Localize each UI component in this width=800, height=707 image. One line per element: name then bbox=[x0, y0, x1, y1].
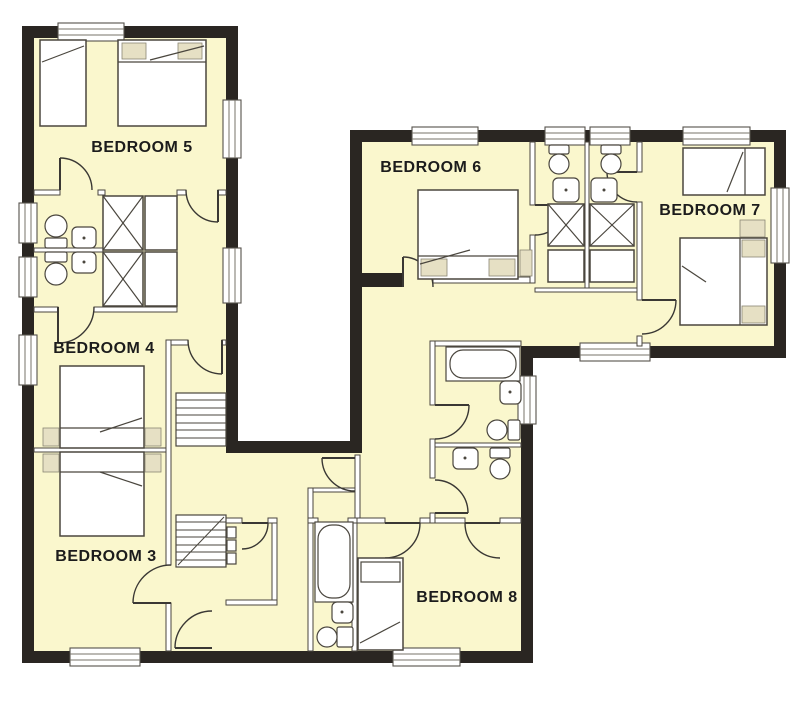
wardrobe-icon bbox=[103, 252, 143, 306]
label-bedroom-5: BEDROOM 5 bbox=[91, 139, 192, 156]
bed-icon bbox=[60, 452, 144, 536]
bed-icon bbox=[680, 238, 767, 325]
toilet-icon bbox=[549, 145, 569, 174]
window-icon bbox=[223, 100, 241, 158]
nightstand-icon bbox=[740, 220, 765, 237]
window-icon bbox=[590, 127, 630, 145]
toilet-icon bbox=[601, 145, 621, 174]
shelf-unit-icon bbox=[590, 250, 634, 282]
bathtub-icon bbox=[446, 347, 520, 381]
nightstand-icon bbox=[145, 428, 161, 446]
toilet-icon bbox=[490, 448, 510, 479]
window-icon bbox=[19, 335, 37, 385]
shelf-unit-icon bbox=[145, 252, 177, 306]
nightstand-icon bbox=[145, 454, 161, 472]
window-icon bbox=[545, 127, 585, 145]
shelf-unit-icon bbox=[145, 196, 177, 250]
shelf-unit-icon bbox=[548, 250, 584, 282]
bed-icon bbox=[60, 366, 144, 448]
toilet-icon bbox=[45, 252, 67, 285]
window-icon bbox=[683, 127, 750, 145]
label-bedroom-4: BEDROOM 4 bbox=[53, 340, 154, 357]
bed-icon bbox=[418, 190, 518, 279]
sink-icon bbox=[72, 252, 96, 273]
nightstand-icon bbox=[520, 250, 532, 276]
shelf-unit-icon bbox=[227, 553, 236, 564]
sink-icon bbox=[332, 602, 353, 623]
window-icon bbox=[412, 127, 478, 145]
nightstand-icon bbox=[43, 454, 59, 472]
staircase-upper-flight bbox=[176, 393, 226, 446]
floor-plan-drawing: BEDROOM 5 BEDROOM 4 BEDROOM 3 BEDROOM 6 … bbox=[0, 0, 800, 707]
bed-icon bbox=[683, 148, 765, 195]
sink-icon bbox=[453, 448, 478, 469]
window-icon bbox=[771, 188, 789, 263]
label-bedroom-8: BEDROOM 8 bbox=[416, 589, 517, 606]
window-icon bbox=[58, 23, 124, 41]
sink-icon bbox=[500, 381, 521, 404]
bed-icon bbox=[118, 40, 206, 126]
floor-plan: BEDROOM 5 BEDROOM 4 BEDROOM 3 BEDROOM 6 … bbox=[0, 0, 800, 707]
window-icon bbox=[70, 648, 140, 666]
window-icon bbox=[223, 248, 241, 303]
bed-icon bbox=[358, 558, 403, 650]
bed-icon bbox=[40, 40, 86, 126]
sink-icon bbox=[72, 227, 96, 248]
window-icon bbox=[19, 257, 37, 297]
toilet-icon bbox=[45, 215, 67, 248]
nightstand-icon bbox=[43, 428, 59, 446]
staircase-lower-flight bbox=[176, 515, 226, 567]
label-bedroom-3: BEDROOM 3 bbox=[55, 548, 156, 565]
sink-icon bbox=[591, 178, 617, 202]
bathtub-icon bbox=[315, 522, 353, 602]
shelf-unit-icon bbox=[227, 540, 236, 551]
wardrobe-icon bbox=[590, 204, 634, 246]
wardrobe-icon bbox=[548, 204, 584, 246]
sink-icon bbox=[553, 178, 579, 202]
label-bedroom-6: BEDROOM 6 bbox=[380, 159, 481, 176]
shelf-unit-icon bbox=[227, 527, 236, 538]
toilet-icon bbox=[487, 420, 520, 440]
wardrobe-icon bbox=[103, 196, 143, 250]
window-icon bbox=[19, 203, 37, 243]
label-bedroom-7: BEDROOM 7 bbox=[659, 202, 760, 219]
